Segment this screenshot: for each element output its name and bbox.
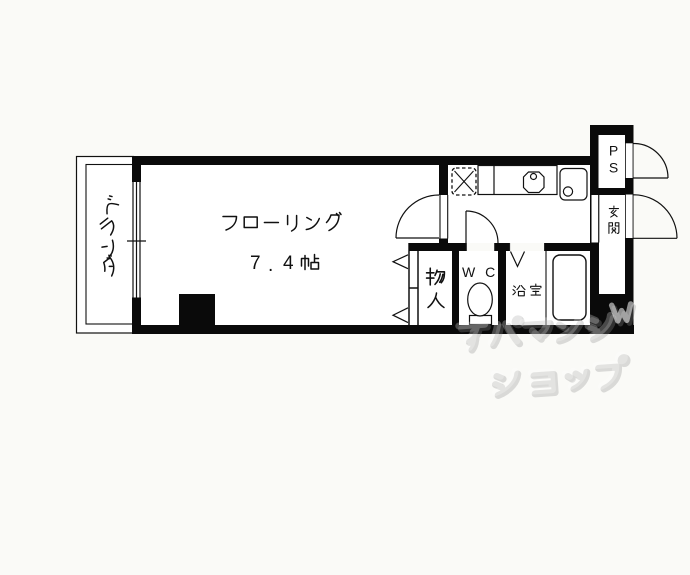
svg-text:7: 7: [250, 253, 261, 274]
svg-text:P: P: [609, 143, 618, 159]
svg-text:4: 4: [283, 253, 294, 274]
svg-text:S: S: [609, 160, 618, 176]
svg-text:.: .: [268, 255, 273, 276]
svg-text:W C: W C: [462, 264, 498, 280]
